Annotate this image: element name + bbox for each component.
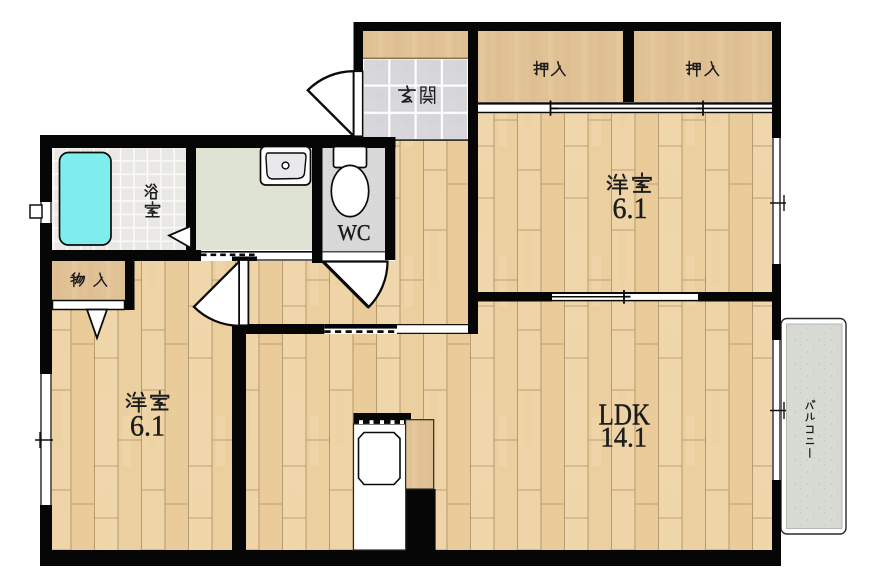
svg-text:WC: WC <box>338 220 371 245</box>
svg-text:6.1: 6.1 <box>130 411 165 443</box>
svg-text:14.1: 14.1 <box>601 422 648 453</box>
svg-text:6.1: 6.1 <box>613 193 648 225</box>
